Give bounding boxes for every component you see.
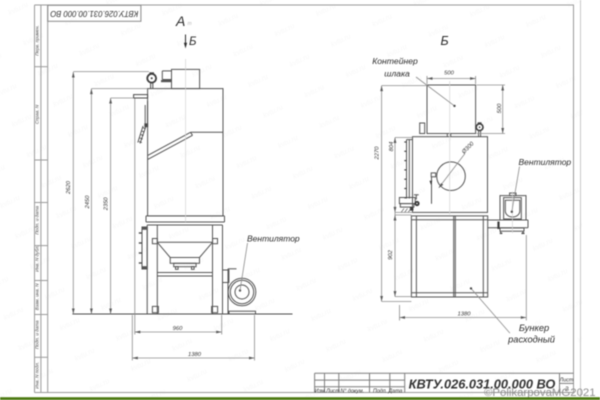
svg-text:Изм.Лист: Изм.Лист xyxy=(315,388,341,394)
svg-text:КВТУ.026.031.00.000 ВО: КВТУ.026.031.00.000 ВО xyxy=(50,9,138,18)
svg-text:960: 960 xyxy=(173,326,183,332)
svg-text:N° докум.: N° докум. xyxy=(341,388,365,394)
svg-text:Справ. N: Справ. N xyxy=(34,104,39,124)
svg-text:m: m xyxy=(188,21,192,27)
svg-text:Вентилятор: Вентилятор xyxy=(519,157,572,167)
svg-text:шлака: шлака xyxy=(384,69,410,79)
svg-text:Взам. инв. N: Взам. инв. N xyxy=(34,283,39,310)
svg-text:Вентилятор: Вентилятор xyxy=(247,234,300,244)
svg-text:Перв. примен.: Перв. примен. xyxy=(34,25,39,56)
svg-text:Подп.: Подп. xyxy=(373,388,387,394)
svg-text:1380: 1380 xyxy=(188,352,202,358)
svg-text:Подп. и дата: Подп. и дата xyxy=(34,320,39,349)
svg-text:Лист: Лист xyxy=(559,378,574,384)
svg-text:Б: Б xyxy=(189,36,197,48)
svg-text:804: 804 xyxy=(389,142,395,152)
svg-text:Инв. N подл.: Инв. N подл. xyxy=(34,362,39,389)
svg-text:Контейнер: Контейнер xyxy=(372,56,418,66)
svg-text:500: 500 xyxy=(497,103,503,113)
svg-text:2450: 2450 xyxy=(85,195,91,210)
svg-text:Инв. N дубл.: Инв. N дубл. xyxy=(34,245,39,272)
svg-text:А: А xyxy=(175,13,185,29)
svg-text:2620: 2620 xyxy=(66,180,72,195)
svg-text:Дата: Дата xyxy=(387,388,402,394)
svg-text:расходный: расходный xyxy=(507,335,555,345)
svg-text:2350: 2350 xyxy=(104,197,110,212)
svg-text:Бункер: Бункер xyxy=(519,323,549,333)
svg-text:Б: Б xyxy=(441,34,449,48)
svg-text:1380: 1380 xyxy=(458,312,472,318)
svg-text:2270: 2270 xyxy=(374,146,380,161)
svg-text:902: 902 xyxy=(388,249,394,259)
svg-text:500: 500 xyxy=(444,71,454,77)
svg-text:Подп. и дата: Подп. и дата xyxy=(34,205,39,234)
